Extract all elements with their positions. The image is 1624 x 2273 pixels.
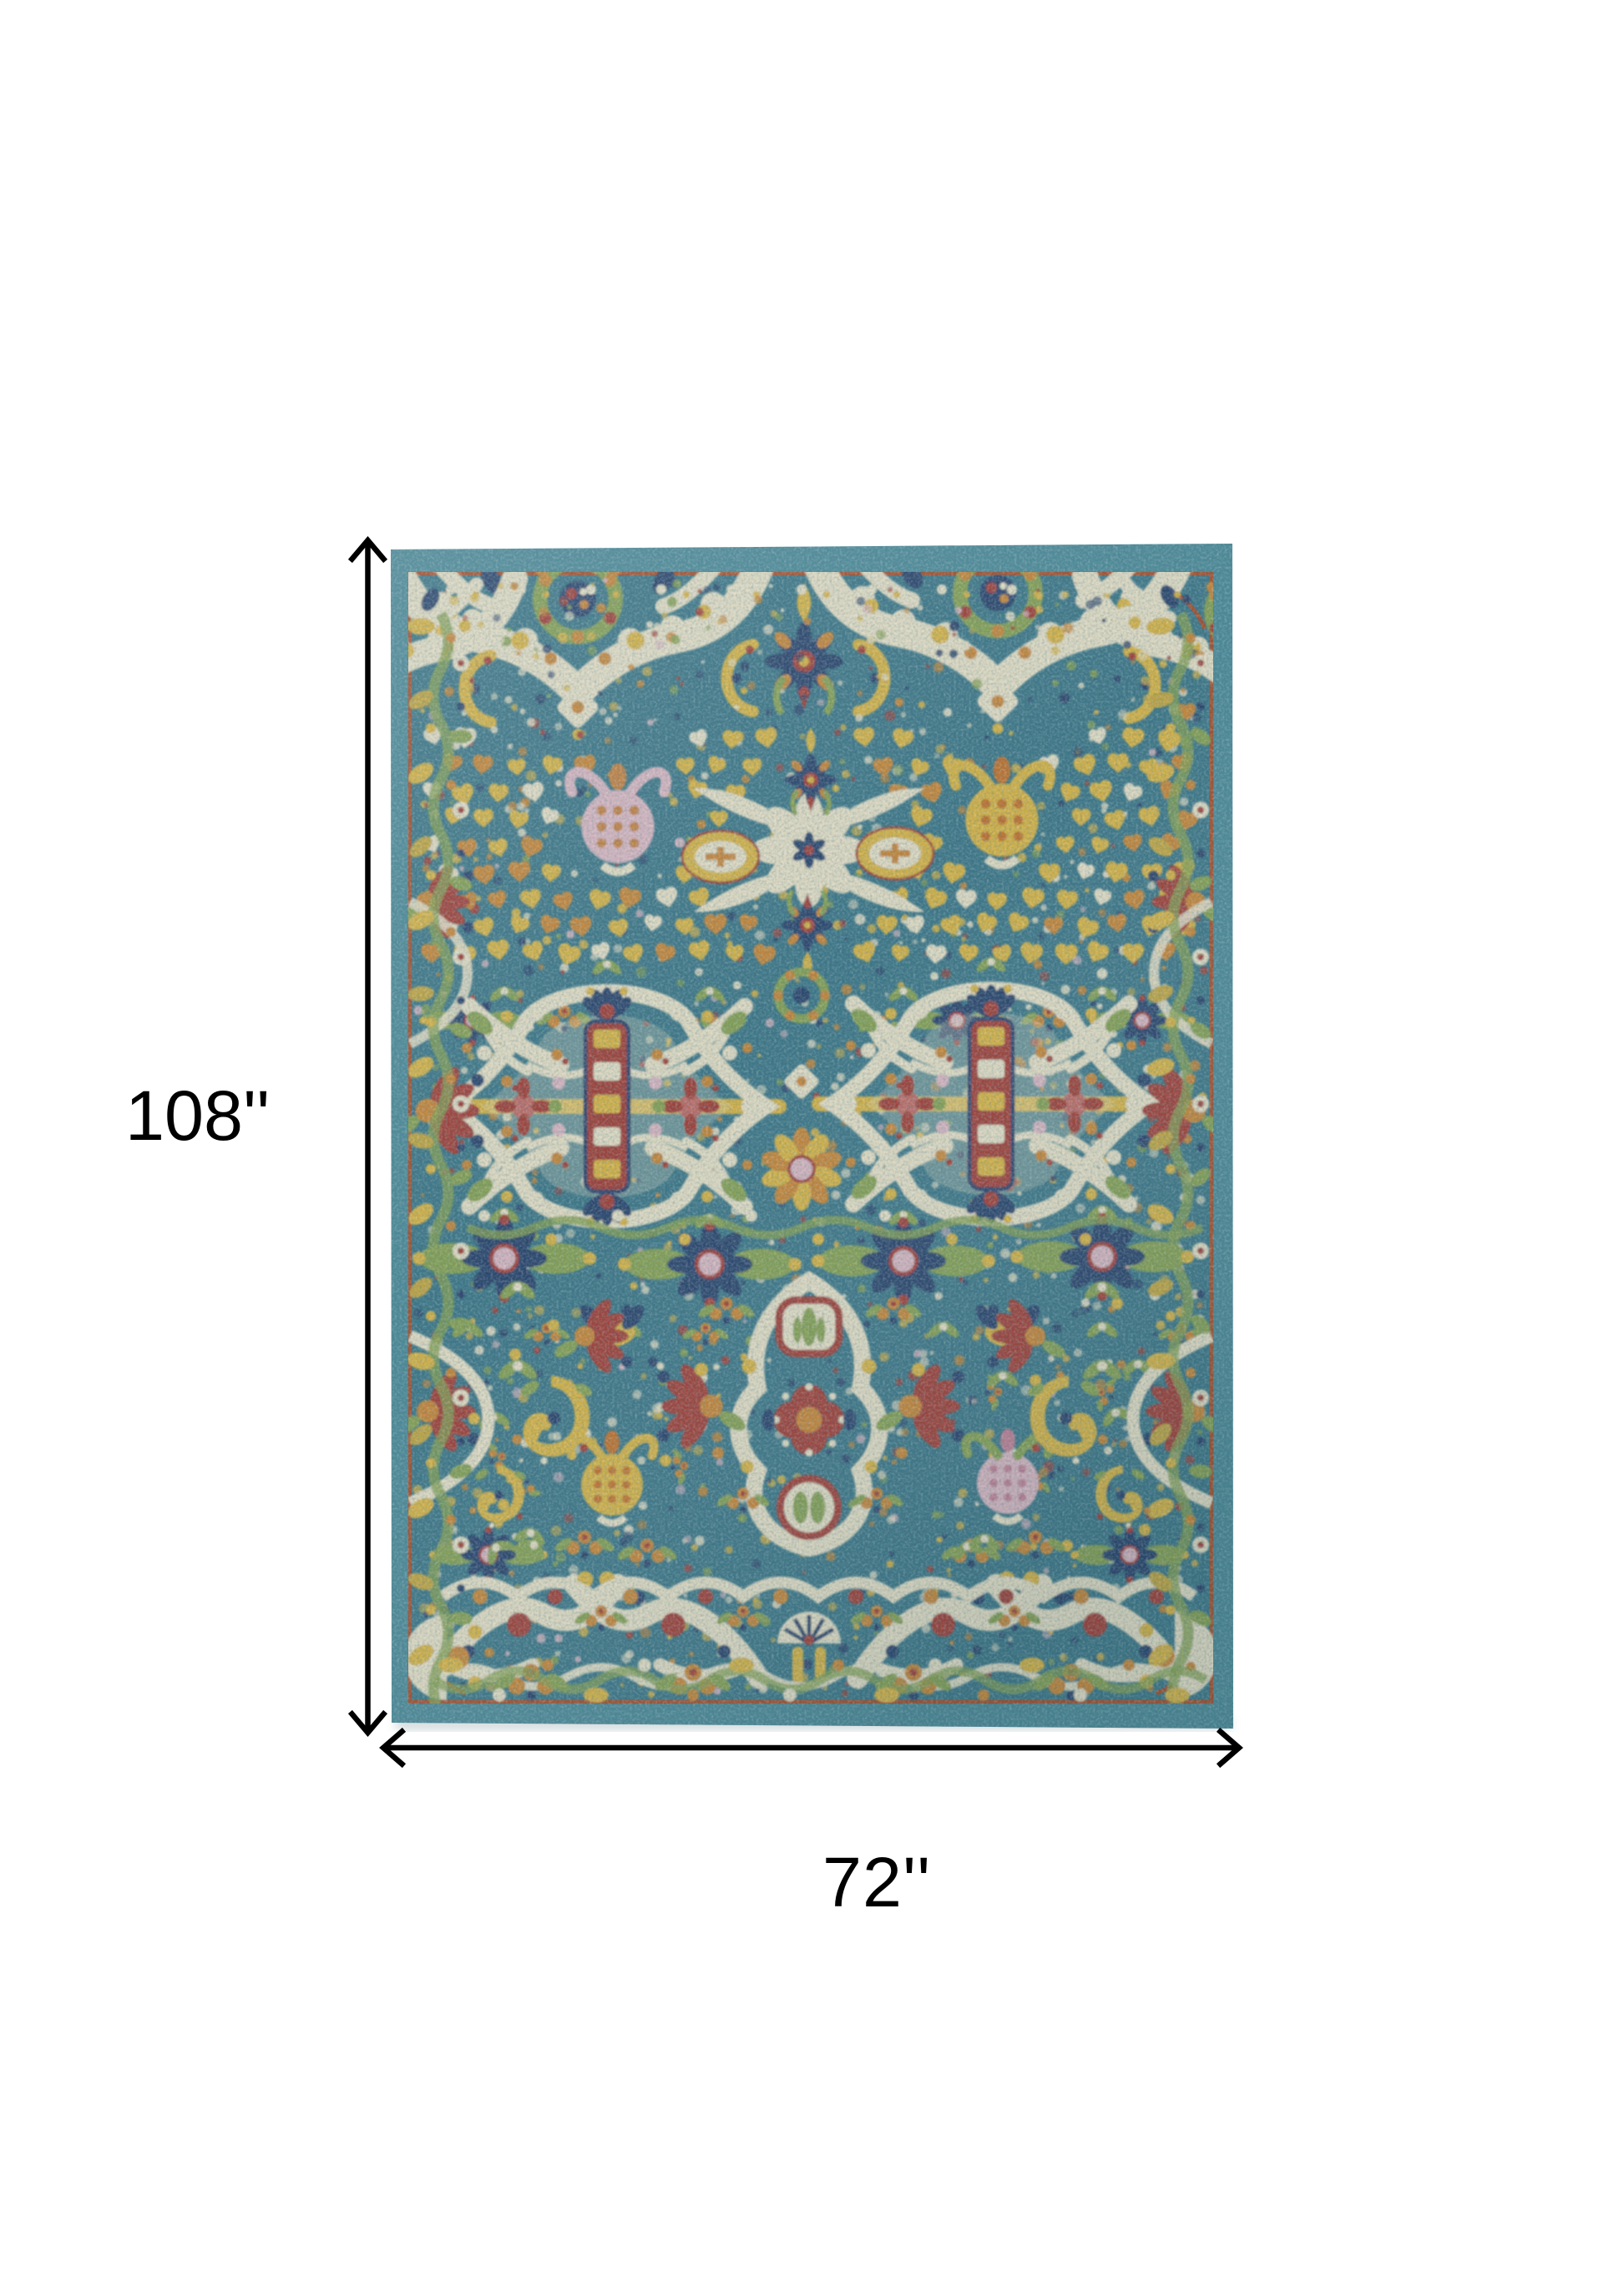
svg-text:72'': 72'' <box>822 1843 931 1921</box>
svg-text:108'': 108'' <box>125 1076 270 1155</box>
